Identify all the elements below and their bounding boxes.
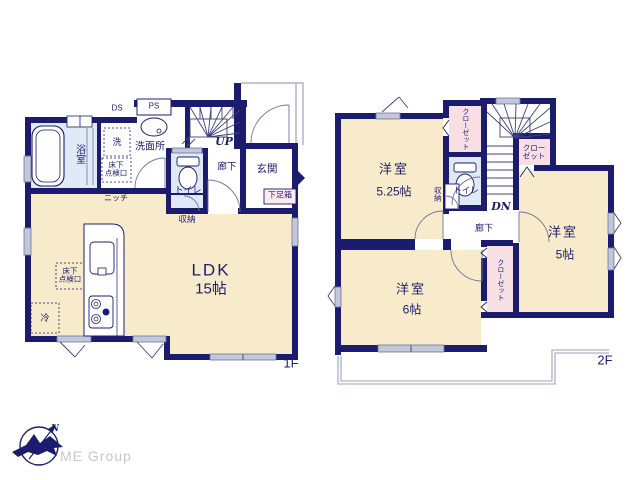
entrance-label: 玄関 — [257, 164, 278, 176]
floor1-porch-outline — [241, 83, 303, 145]
room-5-size-label: 5帖 — [556, 248, 575, 261]
stairs-up-label: UP — [215, 136, 233, 148]
underfloor-hatch-2-label: 床下 点検口 — [59, 268, 82, 285]
room-525-size-label: 5.25帖 — [376, 185, 411, 198]
shoe-box-label: 下足箱 — [268, 192, 292, 201]
toilet-2f-label: トイレ — [453, 186, 479, 196]
floorplan: DS PS 浴室 洗 洗面所 床下 点検口 ニッチ トイレ UP 廊下 玄関 下… — [0, 0, 640, 480]
room-525-label: 洋室 — [379, 163, 409, 178]
stairs-down-label: DN — [491, 201, 511, 213]
ldk-size-label: 15帖 — [195, 282, 227, 299]
floor2-roof-outline — [338, 350, 609, 384]
floor1-side-door-mark — [298, 171, 305, 185]
pipe-space-label: PS — [149, 103, 160, 112]
washer-label: 洗 — [112, 137, 121, 147]
floor2-label: 2F — [597, 354, 612, 369]
hallway-1f-label: 廊下 — [217, 163, 236, 174]
room-6-label: 洋室 — [396, 283, 426, 298]
toilet-1f-label: トイレ — [174, 185, 201, 195]
washroom-label: 洗面所 — [135, 141, 165, 152]
storage-1f-label: 収納 — [178, 215, 195, 225]
compass-north-label: N — [51, 424, 59, 434]
fridge-label: 冷 — [40, 313, 49, 323]
floor1-label: 1F — [283, 357, 298, 372]
underfloor-hatch-label: 床下 点検口 — [105, 162, 128, 179]
room-5-label: 洋室 — [548, 226, 578, 241]
closet-6-label: クローゼット — [496, 259, 504, 301]
floorplan-drawing — [0, 0, 640, 480]
duct-space-label: DS — [111, 105, 122, 114]
hallway-2f-label: 廊下 — [475, 223, 493, 233]
niche-label: ニッチ — [104, 195, 128, 204]
floor1-room-fills — [31, 123, 292, 354]
company-logo-text: ME Group — [60, 448, 132, 464]
bath-room-label: 浴室 — [73, 144, 84, 164]
closet-525-label: クローゼット — [461, 108, 469, 150]
closet-5-label: クロー ゼット — [523, 145, 546, 162]
room-6-size-label: 6帖 — [403, 303, 422, 316]
storage-2f-label: 収納 — [433, 187, 441, 202]
ldk-label: LDK — [191, 260, 230, 279]
